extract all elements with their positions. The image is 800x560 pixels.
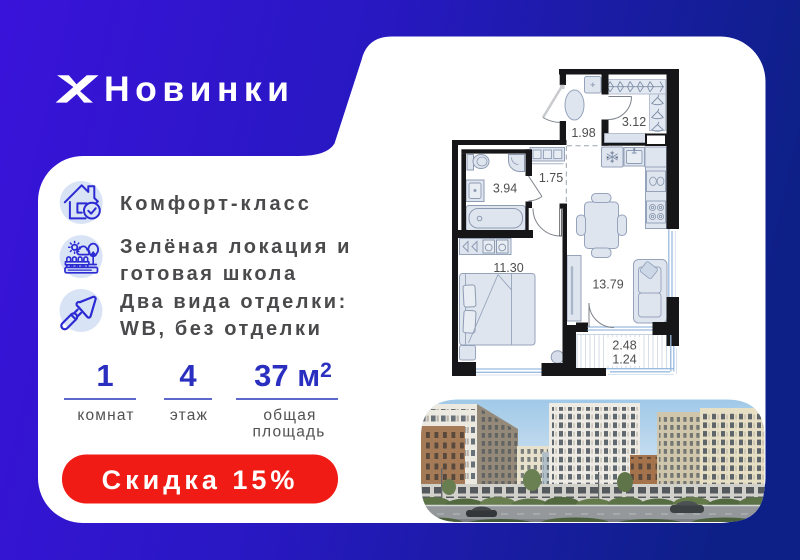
svg-text:WB, без отделки: WB, без отделки [120, 318, 323, 340]
svg-text:13.79: 13.79 [592, 278, 623, 292]
svg-text:Скидка 15%: Скидка 15% [102, 465, 299, 495]
svg-text:1.75: 1.75 [539, 171, 563, 185]
svg-text:площадь: площадь [252, 424, 325, 441]
svg-text:3.12: 3.12 [622, 115, 646, 129]
svg-text:1.98: 1.98 [571, 126, 595, 140]
svg-text:Зелёная локация и: Зелёная локация и [120, 236, 352, 258]
svg-text:1: 1 [96, 358, 113, 393]
svg-text:готовая школа: готовая школа [120, 263, 298, 285]
svg-text:этаж: этаж [170, 407, 208, 424]
svg-text:4: 4 [179, 358, 197, 393]
svg-text:Новинки: Новинки [104, 69, 295, 109]
svg-text:Комфорт-класс: Комфорт-класс [120, 193, 312, 215]
svg-text:11.30: 11.30 [493, 261, 523, 275]
svg-text:3.94: 3.94 [493, 182, 517, 196]
svg-text:Два вида отделки:: Два вида отделки: [120, 291, 348, 313]
svg-text:общая: общая [263, 407, 316, 424]
svg-text:комнат: комнат [77, 407, 134, 424]
svg-text:1.24: 1.24 [612, 353, 636, 367]
svg-text:2.48: 2.48 [612, 339, 636, 353]
